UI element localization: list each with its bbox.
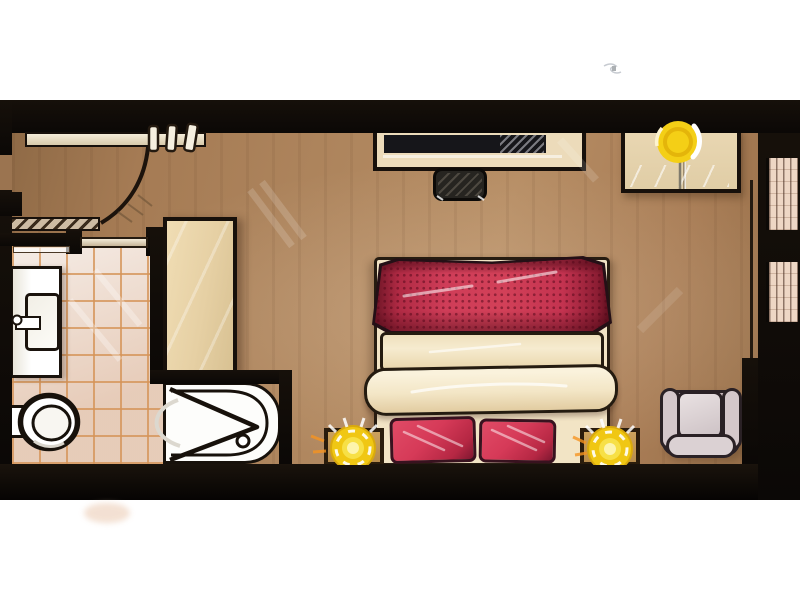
armchair-seat-cushion [677, 391, 723, 439]
bed-red-runner-fill [375, 259, 609, 331]
entry-floor-patch [0, 150, 12, 192]
desk-stool [433, 168, 487, 201]
entry-door-closed-position [10, 217, 100, 231]
bed-red-runner [372, 256, 612, 334]
tv [384, 135, 546, 153]
wall-bottom [0, 464, 800, 500]
wall-right-lower-block [742, 358, 758, 464]
armchair-backrest [666, 434, 736, 458]
wall-niche-lower [766, 262, 798, 322]
pillow-right [479, 418, 557, 463]
dresser-cabinet [621, 128, 741, 193]
floor-plan-canvas [0, 0, 800, 600]
sink-vanity [10, 266, 62, 378]
bed-duvet-roll [364, 364, 619, 416]
entry-door-jamb [0, 192, 22, 216]
faucet [15, 316, 41, 330]
bathroom-shelf [13, 246, 70, 253]
wall-interior-vertical [150, 227, 163, 384]
pink-smudge-mark [84, 503, 130, 523]
wall-niche-upper [766, 158, 798, 230]
faint-scribble [604, 64, 621, 73]
wall-left-lower [0, 190, 12, 464]
wall-bathtub-right [279, 370, 292, 464]
wall-top [0, 100, 800, 133]
armchair [658, 386, 744, 463]
bathroom-sliding-door [80, 237, 148, 248]
wall-bathtub-top [150, 370, 292, 384]
pillow-left [389, 416, 476, 464]
wall-left-upper [0, 100, 12, 155]
nightstand-right [580, 428, 640, 466]
nightstand-left [324, 428, 384, 466]
entry-door-leaf [25, 132, 206, 147]
wall-entry-bathroom [0, 233, 68, 246]
wall-right-edge-line [750, 180, 753, 358]
bathtub [163, 382, 281, 464]
wardrobe [163, 217, 237, 375]
